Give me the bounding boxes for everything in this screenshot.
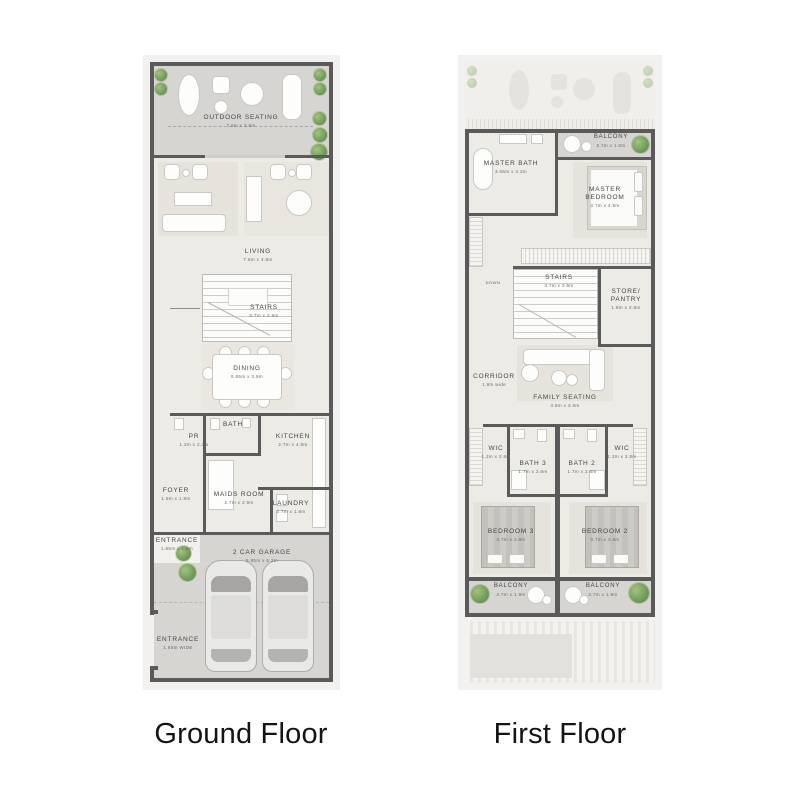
room-label-foyer: FOYER 1.8m x 1.8m: [161, 487, 190, 502]
outdoor-table: [178, 74, 200, 116]
ground-floor-panel: OUTDOOR SEATING 7.6m x 3.8m LIVING 7.6m …: [143, 55, 340, 690]
sliding-door: [205, 155, 285, 158]
closet-hatch: [521, 248, 651, 264]
sofa: [162, 214, 226, 232]
car-rear-window: [211, 649, 251, 662]
wall-segment: [150, 666, 158, 670]
ghost-furniture: [573, 78, 595, 100]
room-label-bath-2: BATH 2 1.7m x 2.6m: [567, 460, 596, 475]
first-floor-building: BALCONY 3.7m x 1.0m MASTER BATH 3.65m x …: [465, 62, 655, 683]
room-label-stairs: STAIRS 3.7m x 2.9m: [544, 274, 573, 289]
round-chair: [286, 190, 312, 216]
outdoor-chair: [214, 100, 228, 114]
plant-icon: [155, 83, 167, 95]
side-table: [288, 169, 296, 177]
room-label-balcony-left: BALCONY 3.7m x 1.9m: [494, 583, 528, 597]
stairs-arrow: [170, 308, 200, 309]
plant-icon: [471, 585, 489, 603]
room-label-wic-right: WIC 1.2m x 2.8m: [607, 445, 636, 460]
wall-segment: [465, 129, 469, 617]
ghost-furniture: [613, 72, 631, 114]
wall-segment: [150, 678, 333, 682]
plant-icon: [643, 66, 653, 76]
kitchen-counter: [312, 418, 326, 528]
wall-segment: [555, 129, 558, 213]
plant-icon: [467, 78, 477, 88]
room-label-stairs: STAIRS 3.7m x 2.9m: [249, 304, 278, 319]
room-label-maids-room: MAIDS ROOM 2.7m x 2.9m: [214, 491, 265, 506]
wall-segment: [555, 497, 560, 617]
wall-segment: [258, 413, 261, 456]
plant-icon: [643, 78, 653, 88]
armchair: [164, 164, 180, 180]
car-roof: [268, 595, 308, 639]
wall-segment: [203, 413, 206, 535]
room-label-bedroom-3: BEDROOM 3 3.7m x 3.8m: [488, 528, 534, 543]
room-label-living: LIVING 7.6m x 4.8m: [243, 248, 272, 263]
room-label-entrance-side: ENTRANCE 1.65m x 1.0m: [156, 537, 198, 552]
wall-segment: [465, 213, 558, 216]
pillow: [509, 554, 525, 564]
sink: [563, 429, 575, 439]
toilet: [531, 134, 543, 144]
wall-segment: [170, 413, 329, 416]
toilet: [587, 429, 597, 442]
room-label-pr: PR 1.2m x 2.2m: [179, 433, 208, 448]
car-roof: [211, 595, 251, 639]
room-label-bedroom-2: BEDROOM 2 3.7m x 3.8m: [582, 528, 628, 543]
plant-icon: [629, 583, 649, 603]
car-rear-window: [268, 649, 308, 662]
room-label-master-bedroom: MASTER BEDROOM 3.7m x 4.8m: [573, 186, 637, 209]
wall-segment: [465, 129, 655, 133]
car-windshield: [211, 576, 251, 592]
room-label-garage: 2 CAR GARAGE 5.85m x 6.2m: [233, 549, 291, 564]
room-label-balcony-right: BALCONY 3.7m x 1.9m: [586, 583, 620, 597]
armchair: [521, 364, 539, 382]
wall-segment: [598, 344, 651, 347]
sink: [242, 418, 251, 428]
toilet: [537, 429, 547, 442]
car: [262, 560, 314, 672]
tv-console: [246, 176, 262, 222]
room-label-master-bath: MASTER BATH 3.65m x 3.2m: [483, 160, 539, 175]
room-label-outdoor-seating: OUTDOOR SEATING 7.6m x 3.8m: [203, 114, 278, 129]
room-label-store-pantry: STORE/ PANTRY 1.8m x 2.8m: [601, 288, 651, 311]
first-floor-caption: First Floor: [494, 718, 627, 751]
ground-floor-building: OUTDOOR SEATING 7.6m x 3.8m LIVING 7.6m …: [150, 62, 333, 682]
room-label-bath-3: BATH 3 1.7m x 2.5m: [518, 460, 547, 475]
plant-icon: [632, 136, 649, 153]
room-label-entrance-front: ENTRANCE 1.65m WIDE: [157, 636, 199, 651]
wall-segment: [513, 266, 651, 269]
first-floor-panel: BALCONY 3.7m x 1.0m MASTER BATH 3.65m x …: [458, 55, 662, 690]
sofa: [589, 349, 605, 391]
entrance-opening: [150, 615, 154, 667]
pillow: [613, 554, 629, 564]
wall-segment: [150, 610, 158, 614]
plant-icon: [314, 69, 326, 81]
room-label-family-seating: FAMILY SEATING 3.8m x 3.8m: [533, 394, 597, 409]
wall-segment: [555, 424, 560, 497]
wall-segment: [557, 157, 651, 160]
balcony-chair: [563, 135, 581, 153]
toilet: [174, 418, 184, 430]
wall-segment: [651, 129, 655, 617]
wall-segment: [150, 532, 329, 535]
plant-icon: [313, 128, 327, 142]
room-label-dining: DINING 5.85m x 3.9m: [231, 365, 263, 380]
room-label-laundry: LAUNDRY 2.7m x 1.8m: [273, 500, 310, 515]
wall-segment: [605, 424, 608, 497]
plant-icon: [179, 564, 196, 581]
sink: [513, 429, 525, 439]
wall-segment: [203, 453, 261, 456]
room-label-balcony-top: BALCONY 3.7m x 1.0m: [594, 134, 628, 148]
toilet: [210, 418, 220, 430]
plant-icon: [155, 69, 167, 81]
floorplan-sheet: OUTDOOR SEATING 7.6m x 3.8m LIVING 7.6m …: [0, 0, 800, 800]
car: [205, 560, 257, 672]
vanity: [499, 134, 527, 144]
wall-segment: [465, 577, 655, 581]
stairs-down-label: DOWN: [486, 280, 501, 285]
ghost-furniture: [551, 74, 567, 90]
wardrobe-hatch: [469, 217, 483, 267]
room-label-corridor: CORRIDOR 1.9m wide: [473, 373, 515, 388]
pillow: [487, 554, 503, 564]
armchair: [296, 164, 312, 180]
ghost-furniture: [509, 70, 529, 110]
plant-icon: [314, 83, 326, 95]
room-label-kitchen: KITCHEN 2.7m x 4.9m: [276, 433, 310, 448]
room-label-wic-left: WIC 1.2m x 2.8m: [481, 445, 510, 460]
side-table: [182, 169, 190, 177]
terrace-deck-hatch: [465, 119, 655, 129]
outdoor-round-table: [240, 82, 264, 106]
balcony-table: [542, 595, 552, 605]
car-windshield: [268, 576, 308, 592]
armchair: [270, 164, 286, 180]
wall-segment: [150, 62, 333, 66]
outdoor-chair: [212, 76, 230, 94]
plant-icon: [467, 66, 477, 76]
armchair: [192, 164, 208, 180]
plant-icon: [313, 112, 326, 125]
outdoor-lounge: [282, 74, 302, 120]
ground-floor-caption: Ground Floor: [154, 718, 327, 751]
wall-segment: [507, 424, 510, 497]
coffee-table: [174, 192, 212, 206]
balcony-table: [581, 141, 592, 152]
pillow: [591, 554, 607, 564]
ghost-furniture: [551, 96, 563, 108]
pouf: [566, 374, 578, 386]
wall-segment: [465, 613, 655, 617]
pouf: [551, 370, 567, 386]
wall-segment: [258, 487, 329, 490]
roof-panel: [470, 634, 572, 678]
room-label-bath: BATH: [223, 421, 243, 429]
